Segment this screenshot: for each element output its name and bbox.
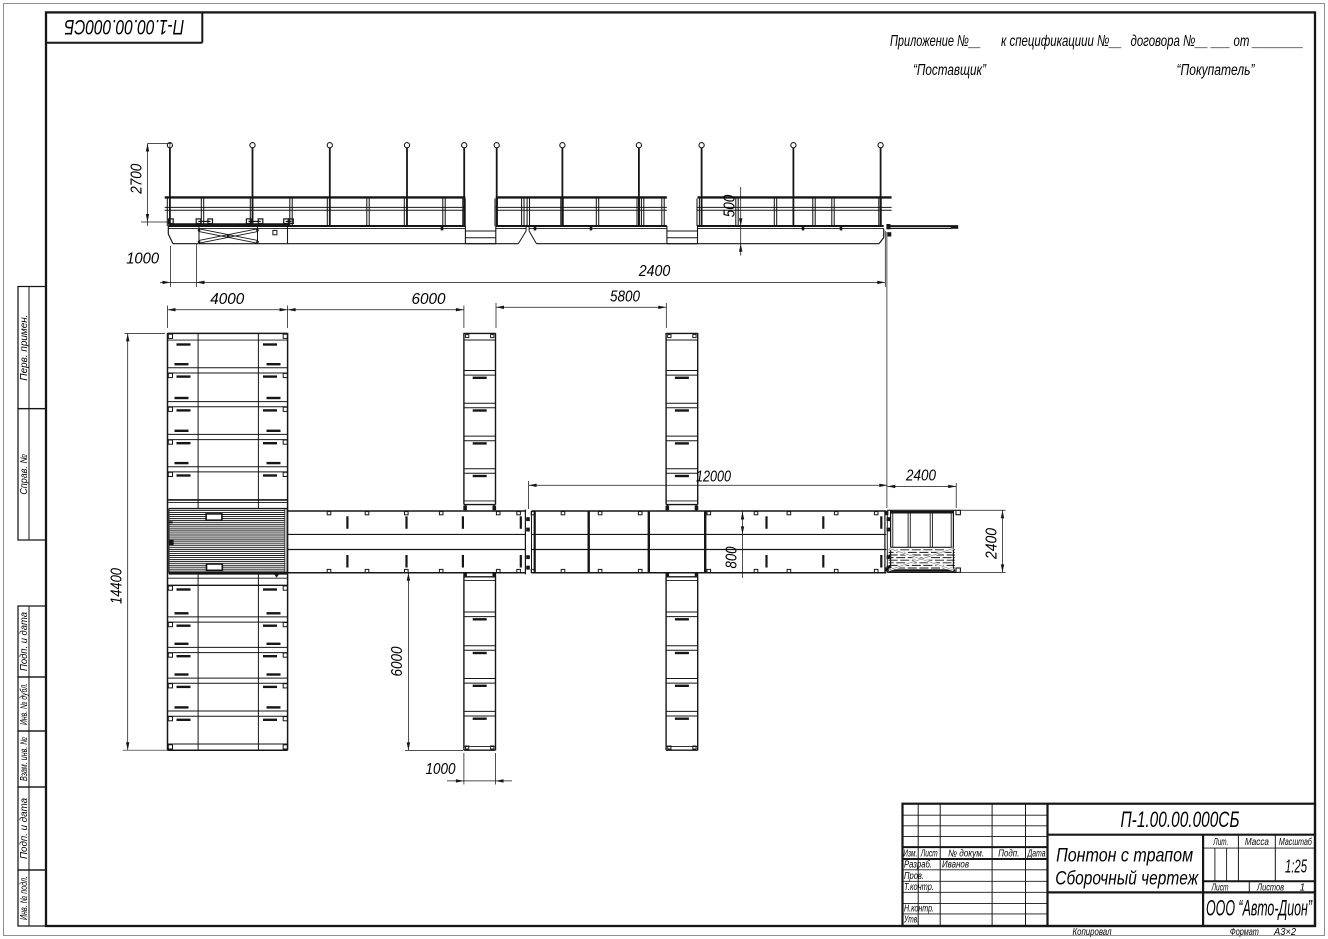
svg-text:Подп.: Подп. <box>998 849 1019 860</box>
svg-text:№ докум.: № докум. <box>948 849 984 860</box>
svg-text:Формат: Формат <box>1230 926 1259 938</box>
svg-text:Изм.: Изм. <box>903 849 917 860</box>
svg-text:Приложение №__: Приложение №__ <box>890 33 981 50</box>
svg-text:Лист: Лист <box>920 849 938 860</box>
svg-text:2400: 2400 <box>905 467 936 484</box>
svg-text:Понтон с трапом: Понтон с трапом <box>1056 846 1193 867</box>
svg-text:Пров.: Пров. <box>904 871 924 882</box>
svg-text:500: 500 <box>722 194 739 217</box>
svg-text:5800: 5800 <box>610 289 640 306</box>
svg-text:Дата: Дата <box>1027 849 1046 860</box>
svg-text:1000: 1000 <box>426 761 456 778</box>
svg-text:1:25: 1:25 <box>1285 857 1308 877</box>
svg-text:Копировал: Копировал <box>1073 926 1112 938</box>
svg-text:2400: 2400 <box>983 528 1000 560</box>
svg-text:Справ. №: Справ. № <box>19 454 30 495</box>
svg-text:12000: 12000 <box>696 468 731 485</box>
svg-text:800: 800 <box>723 546 740 568</box>
svg-text:Иванов: Иванов <box>942 860 969 871</box>
svg-text:1: 1 <box>1300 883 1305 894</box>
svg-text:Подп. и дата: Подп. и дата <box>19 611 30 671</box>
svg-text:2400: 2400 <box>638 263 671 280</box>
svg-text:П-1.00.00.000СБ: П-1.00.00.000СБ <box>64 15 184 38</box>
svg-text:14400: 14400 <box>109 568 126 604</box>
svg-text:Масштаб: Масштаб <box>1279 837 1312 848</box>
svg-text:Утв.: Утв. <box>903 914 919 925</box>
svg-text:Инв. № дубл.: Инв. № дубл. <box>19 683 30 725</box>
svg-text:1000: 1000 <box>126 251 159 268</box>
svg-text:Н.контр.: Н.контр. <box>904 904 934 915</box>
svg-text:Перв. примен.: Перв. примен. <box>19 315 30 381</box>
svg-text:Подп. и дата: Подп. и дата <box>19 797 30 859</box>
svg-text:А3×2: А3×2 <box>1273 926 1296 938</box>
svg-text:Масса: Масса <box>1245 837 1269 848</box>
svg-text:“Поставщик”: “Поставщик” <box>913 62 987 79</box>
svg-text:Инв. № подл.: Инв. № подл. <box>19 876 30 920</box>
svg-text:6000: 6000 <box>389 646 406 676</box>
svg-text:6000: 6000 <box>412 291 446 308</box>
svg-text:Листов: Листов <box>1256 883 1284 894</box>
svg-text:Т.контр.: Т.контр. <box>904 882 934 893</box>
svg-text:к спецификациии №__: к спецификациии №__ <box>1001 33 1122 50</box>
svg-text:2700: 2700 <box>129 163 146 194</box>
svg-text:Лит.: Лит. <box>1213 837 1229 848</box>
svg-text:Лист: Лист <box>1211 883 1229 894</box>
svg-text:Разраб.: Разраб. <box>904 860 932 871</box>
svg-text:ООО “Авто-Дион”: ООО “Авто-Дион” <box>1206 896 1313 921</box>
svg-text:П-1.00.00.000СБ: П-1.00.00.000СБ <box>1121 807 1240 832</box>
svg-text:“Покупатель”: “Покупатель” <box>1177 62 1256 79</box>
svg-text:Взам. инв. №: Взам. инв. № <box>19 737 30 781</box>
svg-text:Сборочный чертеж: Сборочный чертеж <box>1055 869 1199 890</box>
svg-text:4000: 4000 <box>210 291 244 308</box>
svg-text:договора №__ ___ от ________: договора №__ ___ от ________ <box>1131 33 1304 50</box>
